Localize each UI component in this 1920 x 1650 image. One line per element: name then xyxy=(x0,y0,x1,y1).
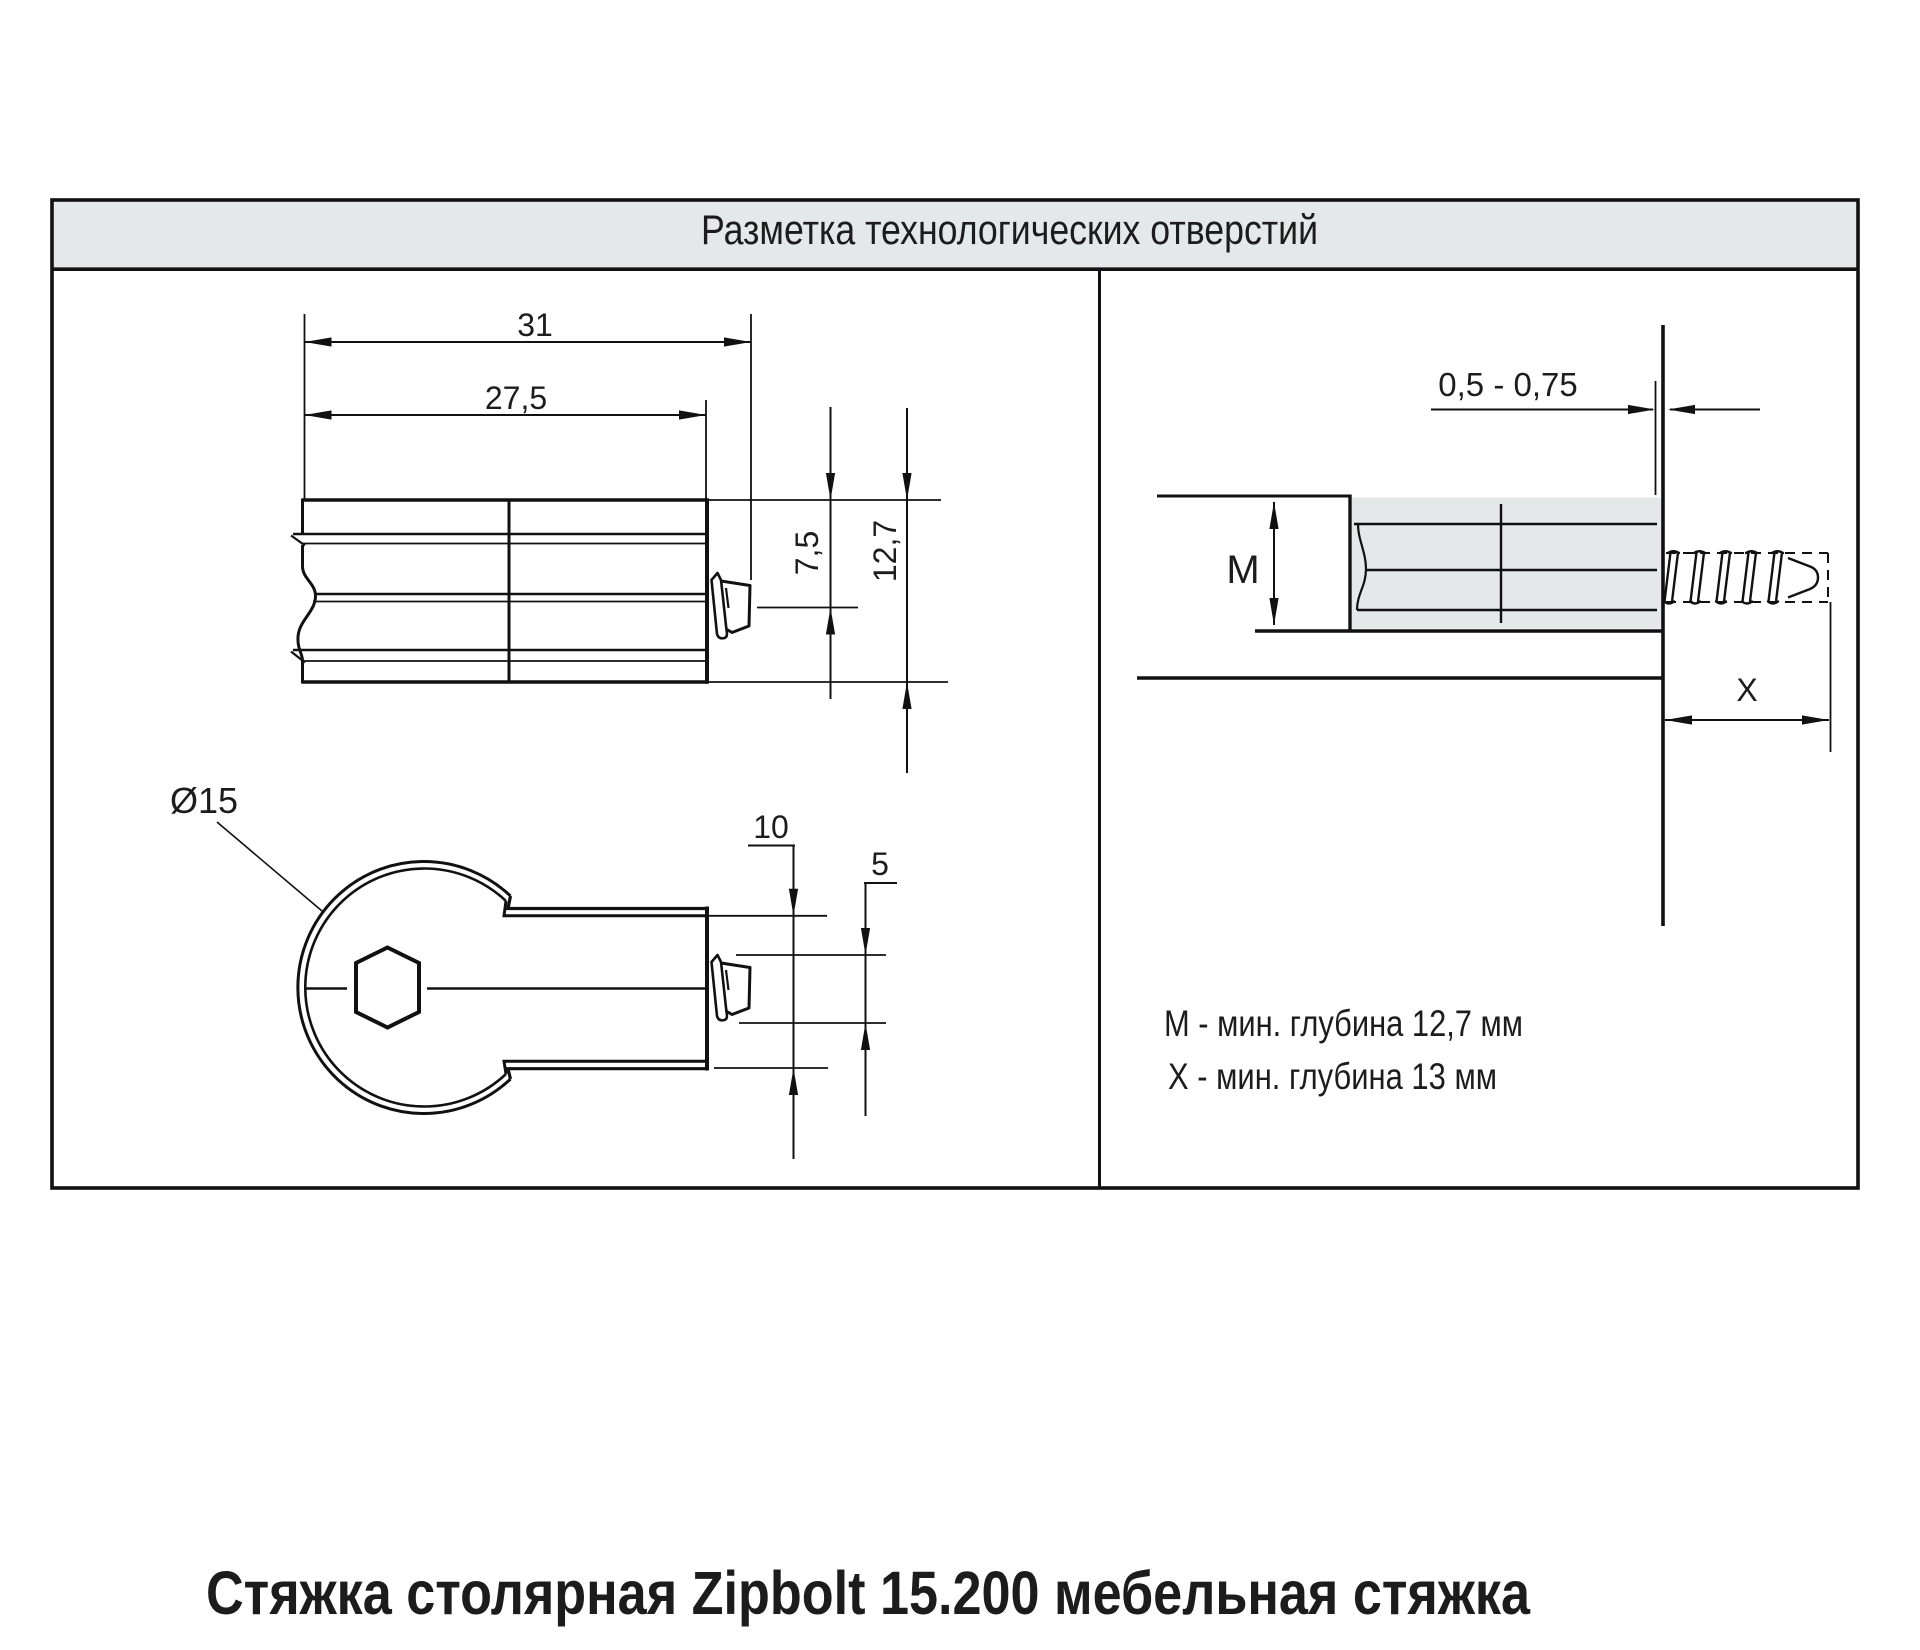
svg-text:10: 10 xyxy=(753,809,789,845)
svg-text:7,5: 7,5 xyxy=(789,531,825,575)
svg-text:М - мин. глубина 12,7 мм: М - мин. глубина 12,7 мм xyxy=(1164,1003,1523,1044)
svg-text:М: М xyxy=(1226,548,1259,592)
svg-text:31: 31 xyxy=(517,307,553,343)
svg-text:Разметка технологических отвер: Разметка технологических отверстий xyxy=(701,206,1318,253)
svg-text:Ø15: Ø15 xyxy=(170,780,238,821)
svg-text:27,5: 27,5 xyxy=(485,380,547,416)
svg-text:12,7: 12,7 xyxy=(867,520,903,582)
svg-text:0,5 - 0,75: 0,5 - 0,75 xyxy=(1438,366,1577,403)
svg-text:Стяжка столярная Zipbolt 15.20: Стяжка столярная Zipbolt 15.200 мебельна… xyxy=(206,1559,1531,1627)
svg-text:5: 5 xyxy=(871,846,889,882)
svg-text:Х: Х xyxy=(1736,672,1757,708)
svg-text:Х - мин. глубина 13 мм: Х - мин. глубина 13 мм xyxy=(1168,1056,1497,1097)
